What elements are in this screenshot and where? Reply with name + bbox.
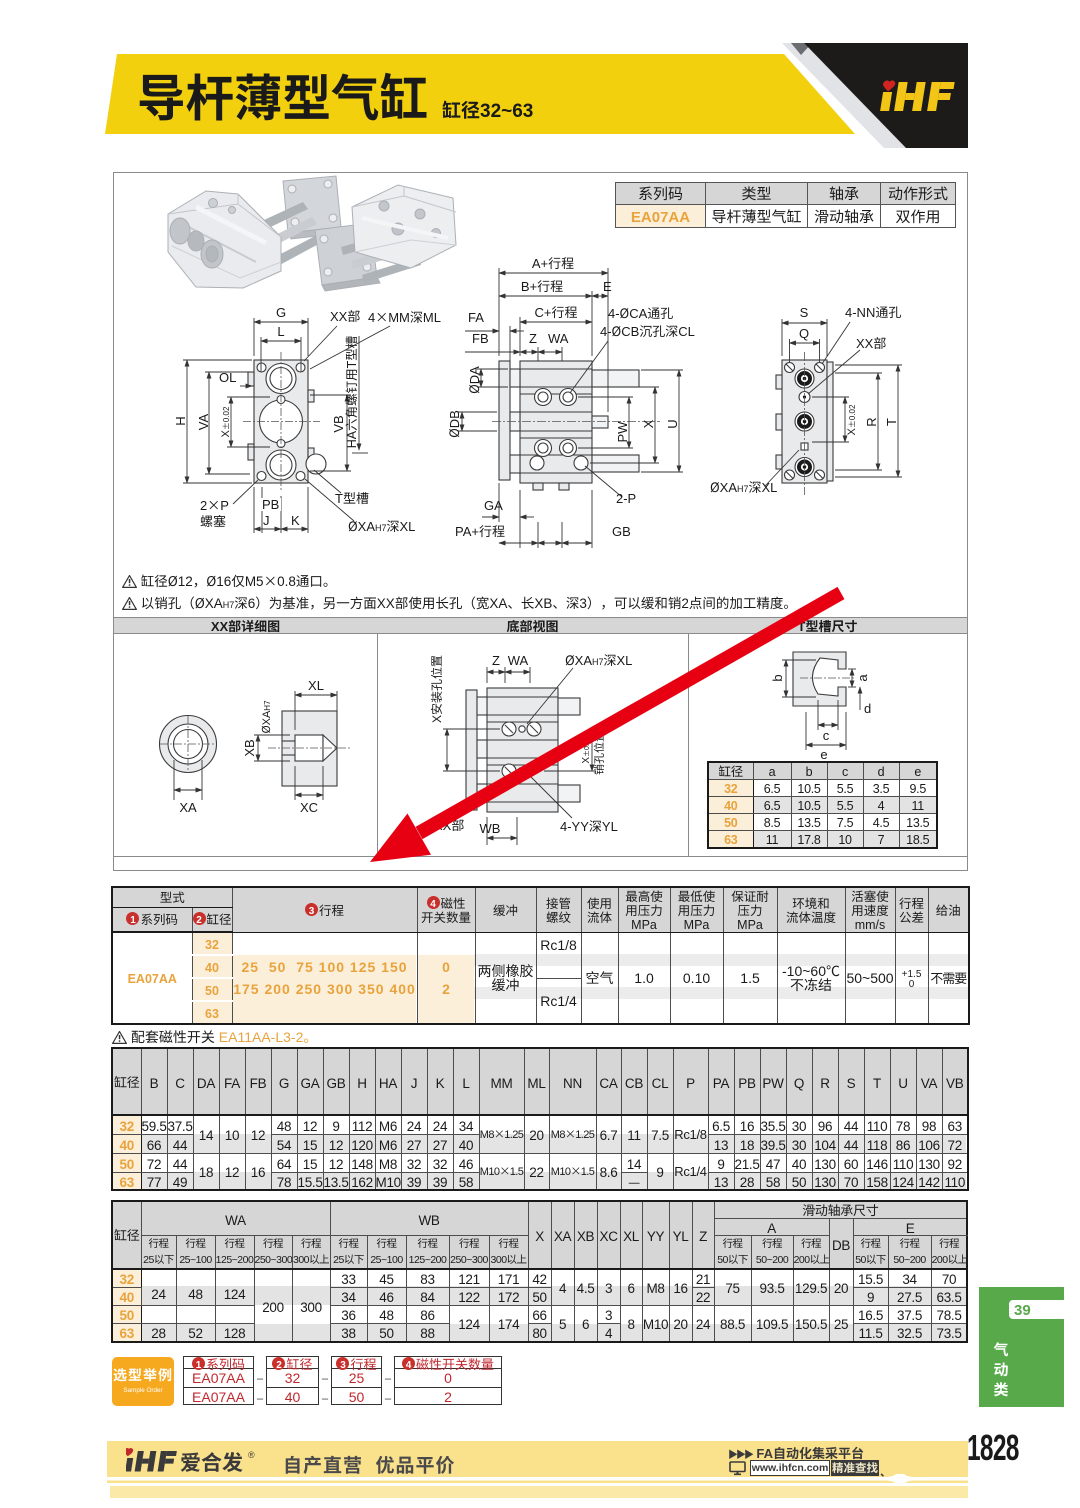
svg-text:FA: FA [468, 307, 484, 326]
svg-text:U: U [662, 419, 681, 428]
svg-text:d: d [864, 698, 871, 717]
svg-text:E: E [603, 276, 612, 295]
svg-text:WB: WB [480, 818, 501, 837]
svg-text:FB: FB [472, 328, 489, 347]
svg-text:WA: WA [508, 650, 529, 669]
svg-text:VA: VA [193, 413, 212, 430]
svg-text:缸径32~63: 缸径32~63 [442, 96, 533, 123]
svg-text:销孔位置: 销孔位置 [591, 731, 607, 775]
svg-text:4-NN通孔: 4-NN通孔 [845, 302, 901, 321]
svg-text:螺塞: 螺塞 [200, 511, 226, 530]
svg-text:®: ® [248, 1448, 255, 1461]
svg-text:L: L [277, 321, 284, 340]
svg-text:R: R [861, 417, 880, 426]
svg-text:HA六角螺钉用T型槽: HA六角螺钉用T型槽 [341, 336, 360, 449]
svg-text:ØXAH7深XL: ØXAH7深XL [710, 477, 777, 496]
svg-text:4-YY深YL: 4-YY深YL [560, 816, 618, 835]
svg-text:XB: XB [239, 739, 258, 756]
svg-text:OL: OL [219, 367, 236, 386]
svg-text:GB: GB [612, 521, 631, 540]
svg-text:K: K [291, 510, 300, 529]
svg-text:T型槽: T型槽 [335, 488, 369, 507]
svg-text:GA: GA [484, 495, 503, 514]
svg-text:a: a [852, 674, 871, 682]
svg-text:4×MM深ML: 4×MM深ML [368, 307, 441, 326]
svg-text:4-ØCB沉孔深CL: 4-ØCB沉孔深CL [600, 321, 695, 340]
svg-text:PW: PW [612, 421, 631, 443]
svg-text:C+行程: C+行程 [535, 302, 578, 321]
svg-text:X±0.02: X±0.02 [577, 736, 592, 763]
svg-text:X安装孔位置: X安装孔位置 [428, 655, 445, 723]
svg-text:XL: XL [308, 675, 324, 694]
svg-text:A+行程: A+行程 [532, 253, 574, 272]
svg-text:ØDB: ØDB [444, 410, 463, 438]
svg-text:e: e [820, 744, 827, 763]
svg-text:H: H [170, 416, 189, 425]
svg-text:XX部: XX部 [330, 306, 360, 325]
svg-text:Q: Q [799, 323, 809, 342]
svg-text:PA+行程: PA+行程 [455, 521, 505, 540]
svg-text:2-P: 2-P [616, 488, 636, 507]
svg-text:J: J [263, 510, 270, 529]
svg-text:Z: Z [492, 650, 500, 669]
svg-text:X±0.02: X±0.02 [217, 406, 233, 437]
svg-text:WA: WA [548, 328, 569, 347]
svg-text:ØXAH7深XL: ØXAH7深XL [565, 650, 632, 669]
svg-text:S: S [800, 302, 809, 321]
svg-text:ØXAH7: ØXAH7 [258, 700, 274, 734]
svg-text:c: c [823, 725, 830, 744]
svg-text:爱合发: 爱合发 [180, 1448, 243, 1477]
svg-text:X: X [638, 419, 657, 428]
svg-text:XX部: XX部 [434, 815, 464, 834]
svg-text:B+行程: B+行程 [521, 276, 563, 295]
svg-text:b: b [767, 674, 786, 681]
svg-text:G: G [276, 302, 286, 321]
svg-text:T: T [881, 418, 900, 426]
svg-text:ØXAH7深XL: ØXAH7深XL [348, 516, 415, 535]
svg-text:XC: XC [300, 797, 318, 816]
svg-text:ØDA: ØDA [464, 366, 483, 394]
svg-text:XA: XA [179, 797, 197, 816]
svg-text:导杆薄型气缸: 导杆薄型气缸 [137, 59, 428, 131]
svg-text:Z: Z [529, 328, 537, 347]
svg-text:XX部: XX部 [856, 333, 886, 352]
svg-text:4-ØCA通孔: 4-ØCA通孔 [608, 303, 673, 322]
